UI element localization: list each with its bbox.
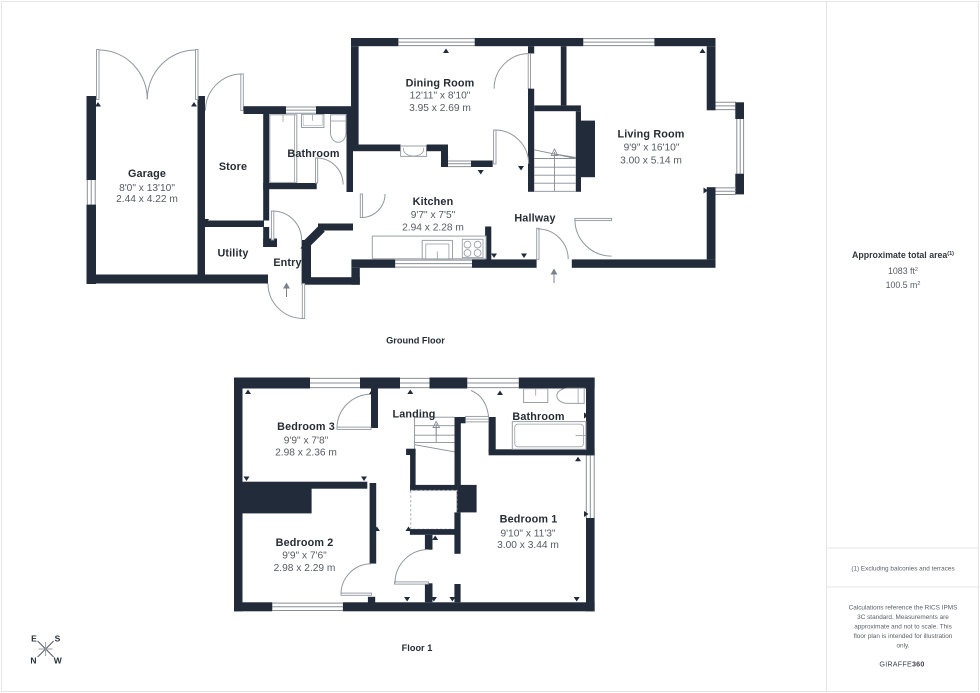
svg-text:12'11" x 8'10": 12'11" x 8'10": [410, 91, 471, 102]
svg-text:2.98 x 2.36 m: 2.98 x 2.36 m: [275, 448, 337, 459]
svg-text:Store: Store: [219, 161, 247, 173]
svg-text:Garage: Garage: [128, 168, 166, 180]
svg-text:floor plan is intended for ill: floor plan is intended for illustration: [854, 633, 953, 640]
svg-text:3.95 x 2.69 m: 3.95 x 2.69 m: [409, 103, 471, 114]
svg-text:Landing: Landing: [392, 409, 435, 421]
svg-text:approximate and not to scale.: approximate and not to scale. This: [854, 624, 952, 631]
svg-text:Bedroom 2: Bedroom 2: [276, 537, 334, 549]
svg-text:3.00 x 3.44 m: 3.00 x 3.44 m: [497, 540, 559, 551]
svg-text:Bedroom 1: Bedroom 1: [500, 513, 558, 525]
svg-text:8'0" x 13'10": 8'0" x 13'10": [119, 183, 175, 194]
svg-text:Approximate total area(1): Approximate total area(1): [852, 250, 954, 260]
svg-text:N: N: [30, 656, 36, 666]
svg-text:(1) Excluding balconies and te: (1) Excluding balconies and terraces: [851, 566, 954, 573]
svg-text:Bedroom 3: Bedroom 3: [277, 421, 335, 433]
svg-text:9'9" x 16'10": 9'9" x 16'10": [624, 142, 680, 153]
svg-text:GIRAFFE360: GIRAFFE360: [879, 659, 924, 668]
svg-text:Calculations reference the RIC: Calculations reference the RICS IPMS: [849, 605, 958, 612]
svg-text:3.00 x 5.14 m: 3.00 x 5.14 m: [620, 156, 682, 167]
svg-text:9'7" x 7'5": 9'7" x 7'5": [411, 210, 456, 221]
svg-text:9'10" x 11'3": 9'10" x 11'3": [500, 529, 555, 540]
svg-text:Ground Floor: Ground Floor: [386, 336, 445, 346]
svg-text:Bathroom: Bathroom: [512, 411, 564, 423]
svg-text:Living Room: Living Room: [617, 129, 684, 141]
svg-text:9'9" x 7'6": 9'9" x 7'6": [282, 551, 327, 562]
svg-text:Utility: Utility: [217, 248, 248, 260]
svg-text:W: W: [54, 656, 63, 666]
svg-text:2.94 x 2.28 m: 2.94 x 2.28 m: [402, 223, 464, 234]
svg-text:S: S: [55, 634, 61, 644]
svg-text:Hallway: Hallway: [514, 213, 555, 225]
svg-text:1083 ft2: 1083 ft2: [888, 266, 918, 276]
svg-text:100.5 m2: 100.5 m2: [886, 280, 921, 290]
svg-text:2.98 x 2.29 m: 2.98 x 2.29 m: [274, 563, 336, 574]
svg-text:only.: only.: [896, 643, 909, 650]
svg-text:Floor 1: Floor 1: [402, 643, 433, 653]
svg-text:Bathroom: Bathroom: [287, 148, 339, 160]
svg-text:E: E: [31, 634, 37, 644]
svg-text:Dining Room: Dining Room: [406, 78, 475, 90]
svg-text:3C standard. Measurements are: 3C standard. Measurements are: [857, 614, 949, 621]
svg-text:2.44 x 4.22 m: 2.44 x 4.22 m: [116, 194, 178, 205]
svg-text:Kitchen: Kitchen: [413, 196, 454, 208]
svg-text:9'9" x 7'8": 9'9" x 7'8": [284, 436, 329, 447]
svg-text:Entry: Entry: [273, 257, 301, 269]
